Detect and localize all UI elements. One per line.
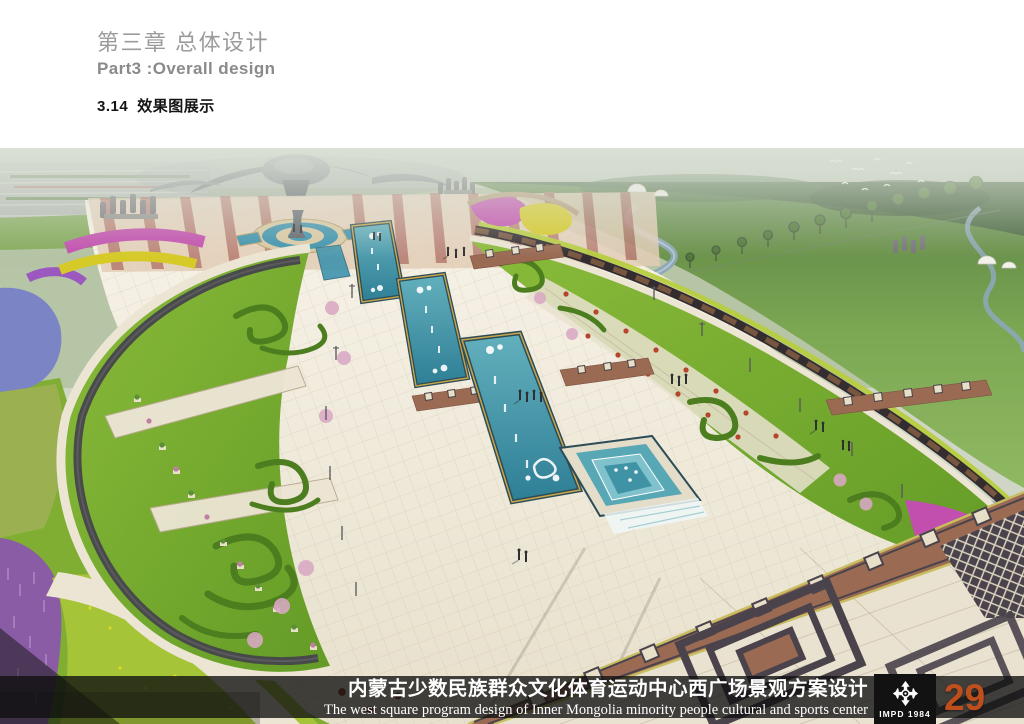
page-number: 29 [944,677,985,719]
section-heading: 3.14效果图展示 [97,95,215,116]
section-title: 效果图展示 [137,98,215,115]
footer-titles: 内蒙古少数民族群众文化体育运动中心西广场景观方案设计 The west squa… [324,679,868,718]
chapter-title-zh: 第三章 总体设计 [97,30,275,56]
impd-logo-icon [892,680,919,707]
section-number: 3.14 [97,98,128,115]
rendering-image [0,148,1024,724]
presentation-page: 第三章 总体设计 Part3 :Overall design 3.14效果图展示 [0,0,1024,724]
project-title-zh: 内蒙古少数民族群众文化体育运动中心西广场景观方案设计 [324,679,868,701]
project-title-en: The west square program design of Inner … [324,702,868,718]
horizon-haze [0,148,1024,258]
chapter-title-en: Part3 :Overall design [97,59,275,79]
logo-text: IMPD 1984 [879,709,931,719]
page-header: 第三章 总体设计 Part3 :Overall design [97,30,275,79]
logo-box: IMPD 1984 [874,674,936,724]
